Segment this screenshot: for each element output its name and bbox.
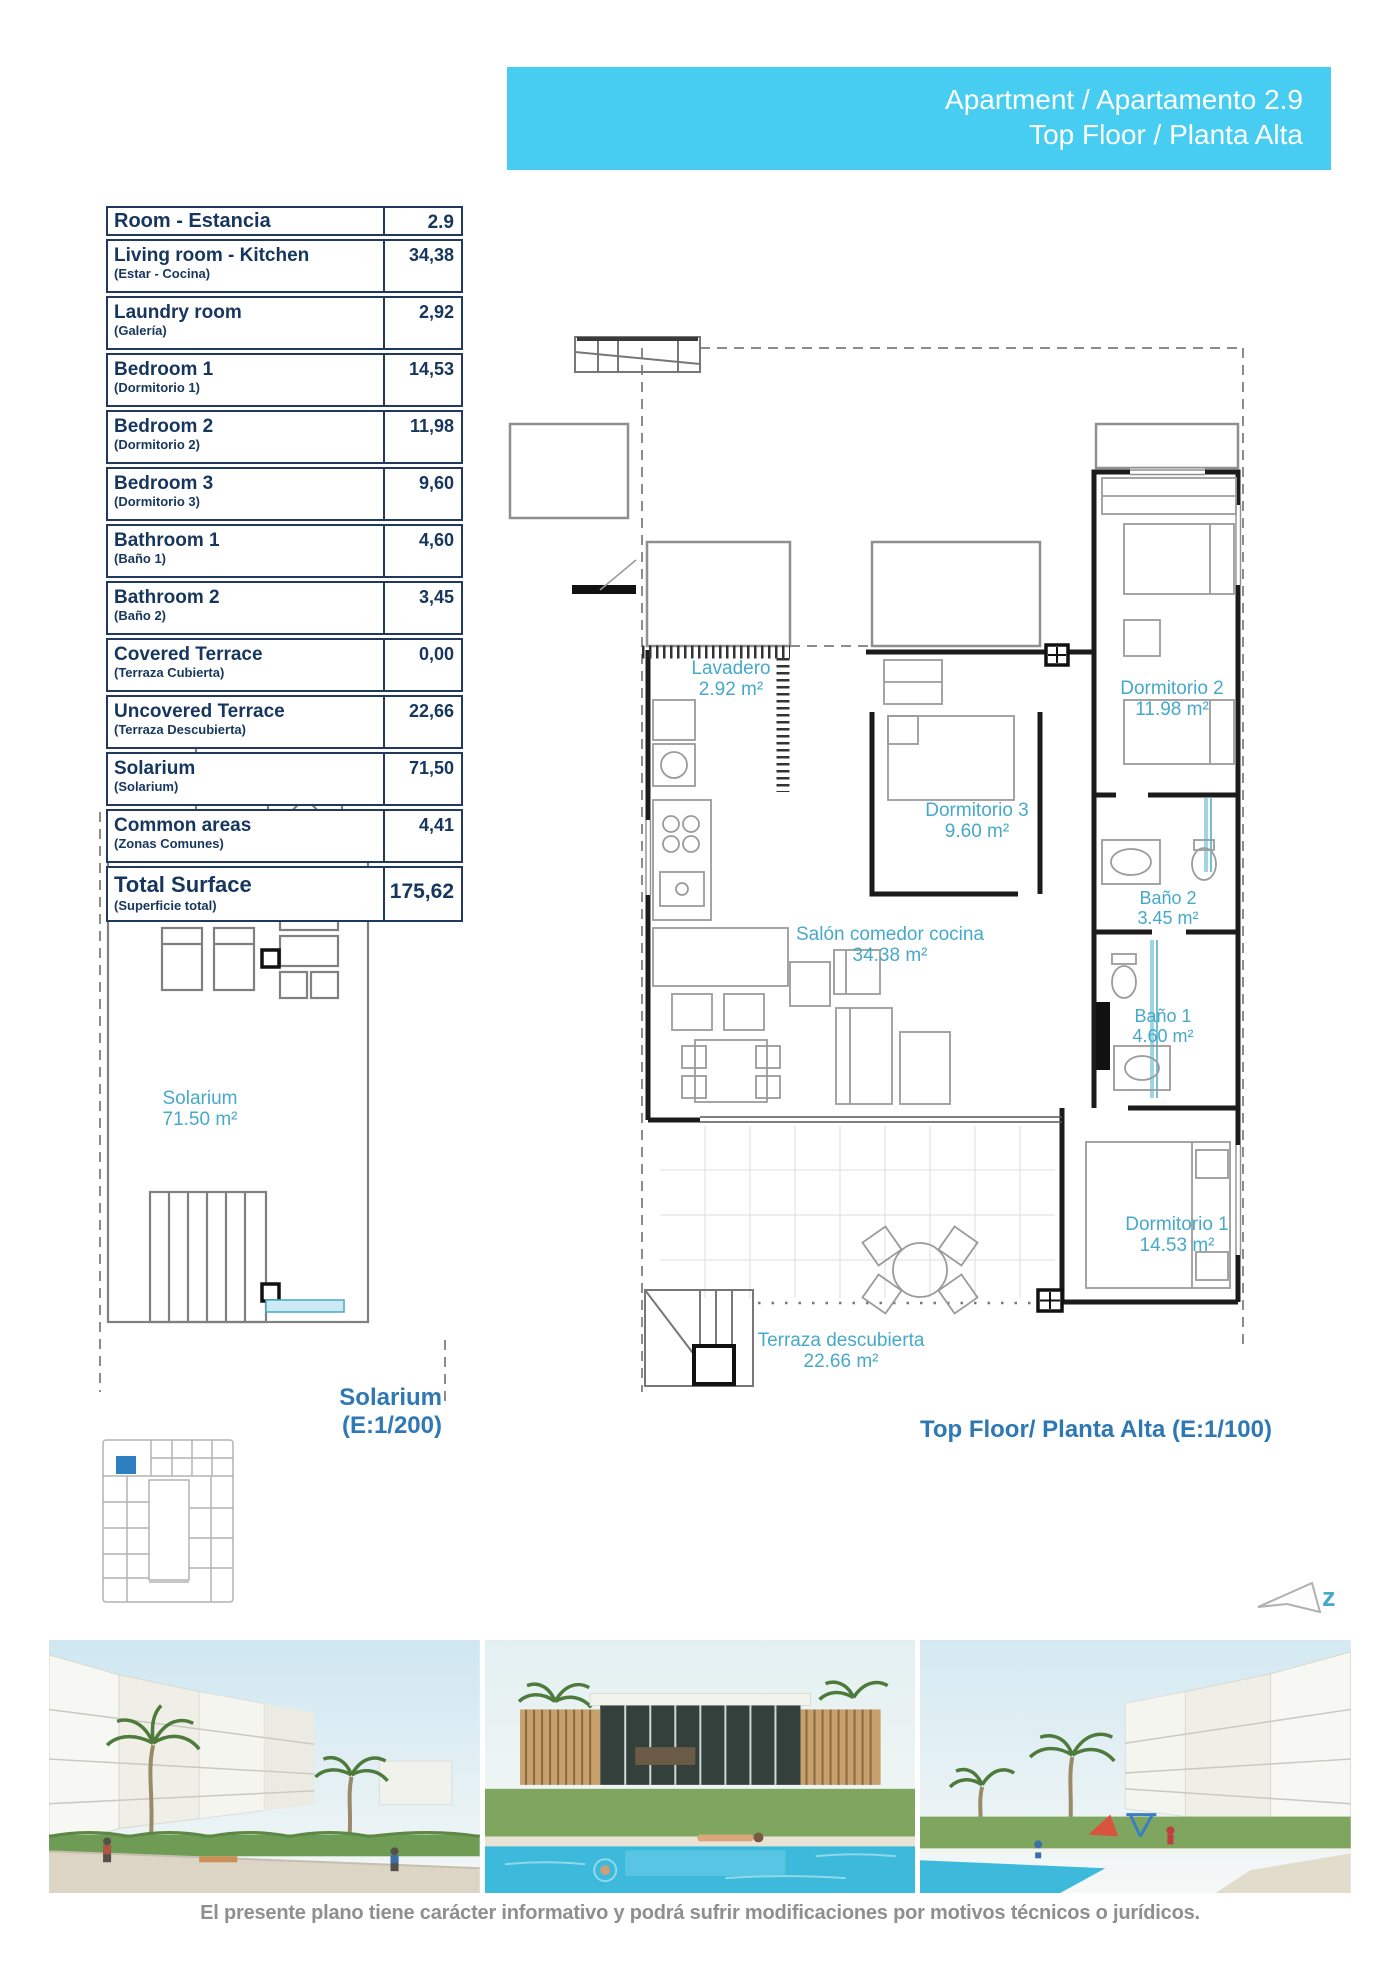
table-row: Common areas (Zonas Comunes) 4,41 xyxy=(106,809,463,863)
orientation-arrow-icon xyxy=(1258,1583,1320,1612)
render-photo-pool-pavilion xyxy=(485,1640,916,1893)
render-photo-playground xyxy=(920,1640,1351,1893)
table-row: Uncovered Terrace (Terraza Descubierta) … xyxy=(106,695,463,749)
render-photo-pool-pavilion-image xyxy=(485,1640,916,1893)
table-header-room: Room - Estancia xyxy=(108,208,383,235)
room-label-lavadero: Lavadero2.92 m² xyxy=(691,658,770,700)
solarium-plan-caption: Solarium (E:1/200) xyxy=(339,1384,442,1440)
stair-landing xyxy=(694,1346,734,1384)
glass-doors xyxy=(700,1117,1062,1122)
terrace-floor-grid xyxy=(660,1126,1055,1298)
table-row: Covered Terrace (Terraza Cubierta) 0,00 xyxy=(106,638,463,692)
room-label-dormitorio-2: Dormitorio 211.98 m² xyxy=(1120,678,1223,720)
table-total-row: Total Surface (Superficie total) 175,62 xyxy=(106,866,463,922)
roof-outlines xyxy=(510,424,1238,646)
header-title-line2: Top Floor / Planta Alta xyxy=(507,117,1303,152)
bathroom-wall-stub xyxy=(1096,1002,1110,1070)
room-label-solarium: Solarium71.50 m² xyxy=(163,1088,238,1130)
room-label-bano-1: Baño 14.60 m² xyxy=(1132,1006,1193,1046)
solarium-glass-rail xyxy=(266,1300,344,1312)
render-photo-street-image xyxy=(49,1640,480,1893)
header-banner: Apartment / Apartamento 2.9 Top Floor / … xyxy=(507,67,1331,170)
table-row: Laundry room (Galería) 2,92 xyxy=(106,296,463,350)
room-label-dormitorio-3: Dormitorio 39.60 m² xyxy=(925,800,1028,842)
solarium-corner-markers xyxy=(262,950,279,1301)
table-row: Living room - Kitchen (Estar - Cocina) 3… xyxy=(106,239,463,293)
table-row: Solarium (Solarium) 71,50 xyxy=(106,752,463,806)
brochure-page: Apartment / Apartamento 2.9 Top Floor / … xyxy=(0,0,1400,1982)
room-label-bano-2: Baño 23.45 m² xyxy=(1137,888,1198,928)
table-row: Bathroom 2 (Baño 2) 3,45 xyxy=(106,581,463,635)
table-header-row: Room - Estancia 2.9 xyxy=(106,206,463,236)
table-header-unit: 2.9 xyxy=(383,208,461,235)
surface-table: Room - Estancia 2.9 Living room - Kitche… xyxy=(106,206,463,925)
orientation-letter: z xyxy=(1322,1582,1336,1613)
window-gaps xyxy=(648,472,1238,1255)
render-photos-strip xyxy=(49,1640,1351,1893)
apartment-walls xyxy=(648,472,1238,1302)
header-title-line1: Apartment / Apartamento 2.9 xyxy=(507,82,1303,117)
room-label-dormitorio-1: Dormitorio 114.53 m² xyxy=(1125,1214,1228,1256)
stair-shaft xyxy=(575,337,700,372)
table-row: Bedroom 3 (Dormitorio 3) 9,60 xyxy=(106,467,463,521)
render-photo-street xyxy=(49,1640,480,1893)
render-photo-playground-image xyxy=(920,1640,1351,1893)
disclaimer-text: El presente plano tiene carácter informa… xyxy=(0,1902,1400,1925)
main-plan-caption: Top Floor/ Planta Alta (E:1/100) xyxy=(920,1416,1272,1444)
room-label-salon: Salón comedor cocina34.38 m² xyxy=(796,924,984,966)
table-row: Bedroom 1 (Dormitorio 1) 14,53 xyxy=(106,353,463,407)
table-row: Bedroom 2 (Dormitorio 2) 11,98 xyxy=(106,410,463,464)
table-row: Bathroom 1 (Baño 1) 4,60 xyxy=(106,524,463,578)
keyplan-highlighted-unit xyxy=(116,1456,136,1474)
room-label-terraza: Terraza descubierta22.66 m² xyxy=(758,1330,925,1372)
